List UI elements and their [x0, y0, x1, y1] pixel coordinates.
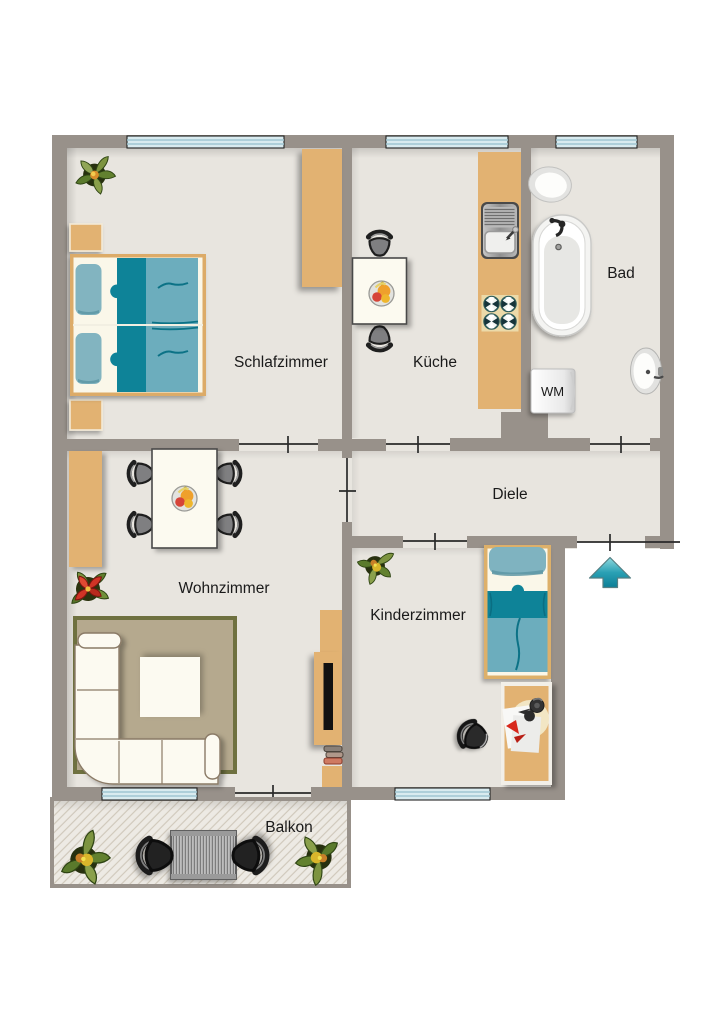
- svg-text:Kinderzimmer: Kinderzimmer: [370, 607, 466, 624]
- svg-text:Diele: Diele: [492, 486, 527, 503]
- svg-text:Schlafzimmer: Schlafzimmer: [234, 354, 328, 371]
- svg-text:Balkon: Balkon: [265, 819, 312, 836]
- svg-text:WM: WM: [541, 384, 564, 399]
- svg-text:Wohnzimmer: Wohnzimmer: [178, 580, 269, 597]
- svg-text:Küche: Küche: [413, 354, 457, 371]
- svg-text:Bad: Bad: [607, 265, 635, 282]
